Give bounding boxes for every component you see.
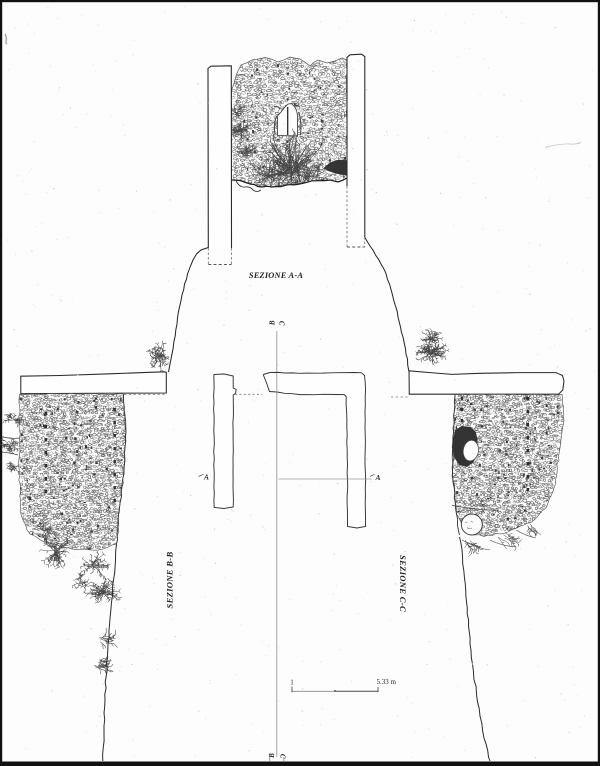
svg-text:C: C xyxy=(278,754,286,759)
svg-text:1: 1 xyxy=(290,679,294,687)
svg-text:A: A xyxy=(374,473,380,482)
svg-text:SEZIONE A-A: SEZIONE A-A xyxy=(249,271,303,280)
svg-text:SEZIONE B-B: SEZIONE B-B xyxy=(165,551,175,608)
svg-text:5.33 m: 5.33 m xyxy=(377,678,397,686)
svg-text:C: C xyxy=(278,321,286,326)
svg-text:B: B xyxy=(268,320,276,326)
svg-text:SEZIONE C-C: SEZIONE C-C xyxy=(398,555,408,612)
svg-text:B: B xyxy=(268,753,276,759)
